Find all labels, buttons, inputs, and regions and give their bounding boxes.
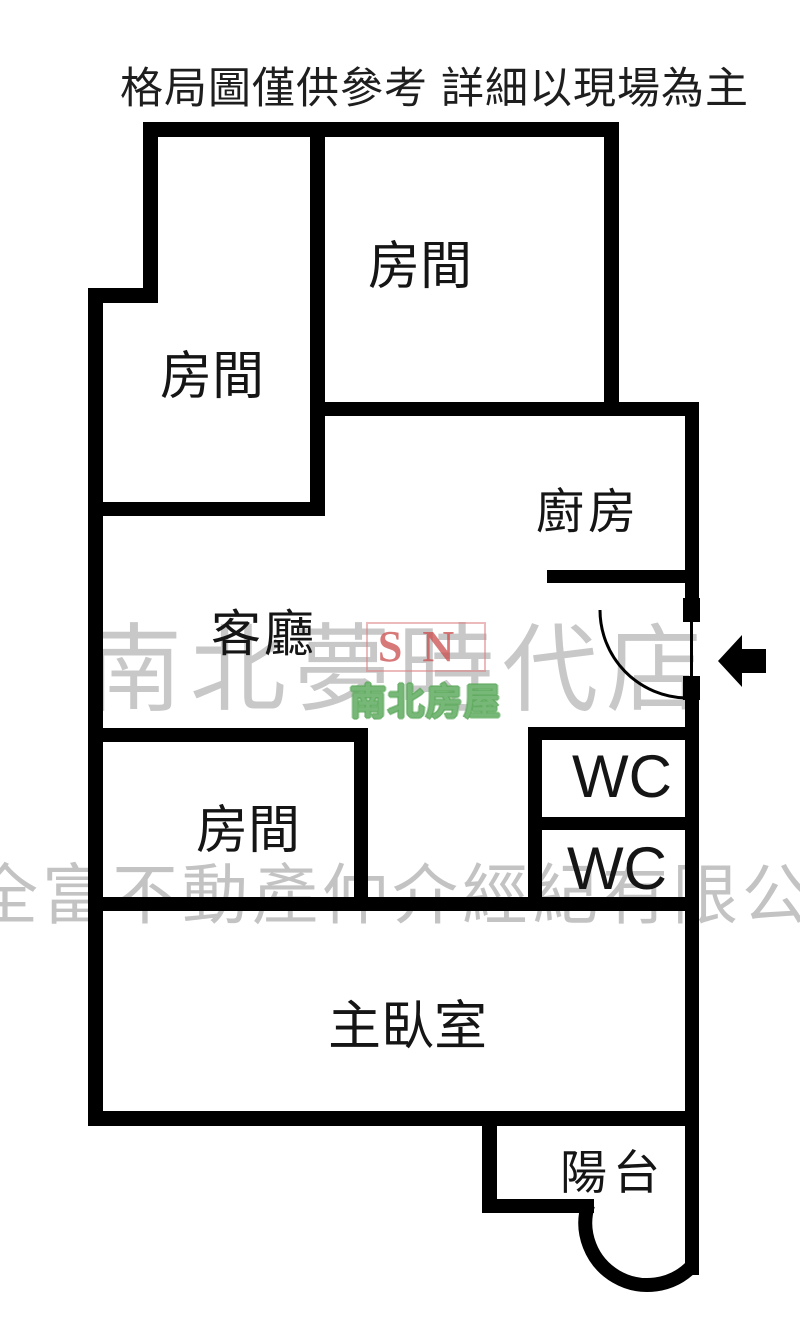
plan-overlay [0,0,800,1339]
entrance-door-swing-arc [600,610,686,698]
room-label-living-room: 客廳 [211,594,317,666]
balcony-curved-wall [585,1205,692,1285]
entrance-arrow-icon [718,635,766,687]
room-label-kitchen: 廚房 [536,472,640,542]
room-label-bedroom-top-left: 房間 [160,334,264,409]
room-label-bedroom-mid-left: 房間 [196,788,300,863]
floor-plan: 格局圖僅供參考 詳細以現場為主 南北夢時代店 全富不動產仲介經紀有限公 SN 南… [0,0,800,1339]
room-label-wc-lower: WC [567,834,667,903]
room-label-wc-upper: WC [572,742,672,811]
room-label-master-bedroom: 主臥室 [328,984,487,1060]
room-label-bedroom-top-right: 房間 [368,224,472,299]
room-label-balcony: 陽台 [560,1134,666,1203]
plan-disclaimer-title: 格局圖僅供參考 詳細以現場為主 [120,54,749,116]
